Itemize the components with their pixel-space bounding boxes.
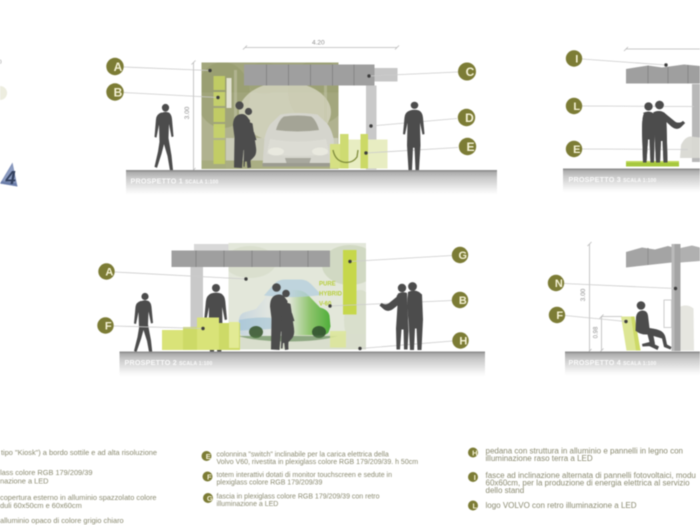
svg-text:H: H bbox=[472, 448, 477, 457]
svg-text:F: F bbox=[105, 320, 112, 332]
svg-text:4.20: 4.20 bbox=[312, 40, 325, 47]
svg-text:E: E bbox=[206, 452, 211, 461]
svg-text:0.98: 0.98 bbox=[594, 326, 600, 338]
svg-text:B: B bbox=[114, 85, 123, 99]
svg-text:Volvo V60, rivestita in plexig: Volvo V60, rivestita in plexiglass color… bbox=[217, 459, 419, 466]
svg-text:E: E bbox=[466, 140, 474, 154]
svg-text:HYBRID: HYBRID bbox=[319, 292, 343, 298]
svg-text:B: B bbox=[459, 295, 467, 307]
svg-text:duli 60x50cm e 60x60cm: duli 60x50cm e 60x60cm bbox=[0, 501, 82, 510]
svg-text:N: N bbox=[555, 278, 563, 290]
svg-text:fascia in plexiglass colore RG: fascia in plexiglass colore RGB 179/209/… bbox=[217, 494, 380, 501]
svg-text:H: H bbox=[459, 335, 467, 347]
svg-text:PURE: PURE bbox=[319, 282, 336, 288]
svg-text:illuminazione raso terra a LED: illuminazione raso terra a LED bbox=[486, 454, 593, 463]
svg-text:A: A bbox=[114, 60, 123, 74]
svg-text:3.00: 3.00 bbox=[184, 106, 191, 119]
svg-text:L: L bbox=[573, 101, 580, 113]
svg-text:colonnina "switch" inclinabile: colonnina "switch" inclinabile per la ca… bbox=[217, 452, 389, 459]
svg-text:totem interattivi dotati di mo: totem interattivi dotati di monitor touc… bbox=[217, 472, 393, 479]
svg-text:D: D bbox=[465, 111, 474, 125]
svg-text:I: I bbox=[575, 53, 578, 65]
svg-text:tipo "Kiosk") a bordo sottile: tipo "Kiosk") a bordo sottile e ad alta … bbox=[1, 448, 157, 457]
svg-text:nazione a LED: nazione a LED bbox=[0, 477, 48, 486]
svg-text:4: 4 bbox=[5, 167, 16, 188]
svg-text:A: A bbox=[105, 266, 113, 278]
svg-text:F: F bbox=[556, 310, 563, 322]
svg-text:dello stand: dello stand bbox=[486, 486, 525, 495]
svg-text:I: I bbox=[474, 473, 476, 482]
svg-text:L: L bbox=[473, 501, 478, 510]
svg-text:F: F bbox=[207, 472, 212, 481]
svg-text:alluminio opaco di colore grig: alluminio opaco di colore grigio chiaro bbox=[0, 516, 124, 525]
svg-text:E: E bbox=[573, 144, 580, 156]
svg-text:logo VOLVO con retro illuminaz: logo VOLVO con retro illuminazione a LED bbox=[486, 501, 637, 510]
svg-text:plexiglass colore RGB 179/209/: plexiglass colore RGB 179/209/39 bbox=[217, 480, 323, 487]
svg-text:G: G bbox=[207, 494, 213, 503]
svg-text:illuminazione a LED: illuminazione a LED bbox=[217, 501, 279, 508]
svg-text:G: G bbox=[459, 250, 468, 262]
svg-text:C: C bbox=[466, 65, 475, 79]
svg-text:3.00: 3.00 bbox=[580, 288, 587, 301]
